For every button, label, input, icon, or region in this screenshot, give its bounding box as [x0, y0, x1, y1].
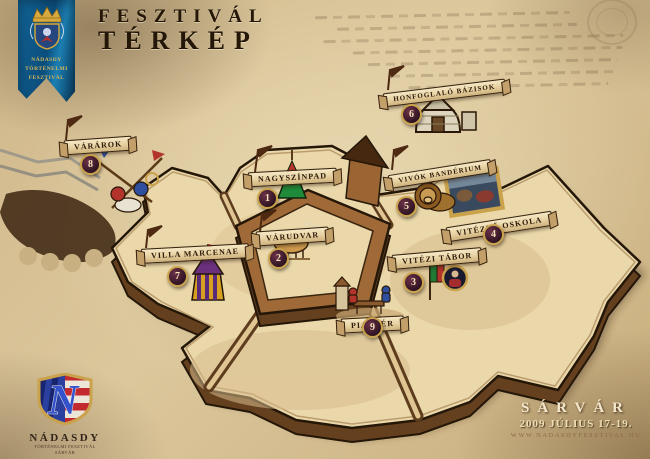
- title-line-1: FESZTIVÁL: [98, 7, 269, 27]
- nadasdy-monogram: N: [47, 378, 80, 424]
- location-badge-4: 4: [483, 224, 504, 245]
- location-badge-8: 8: [80, 154, 101, 175]
- nadasdy-logo: N NÁDASDY TÖRTÉNELMI FESZTIVÁL SÁRVÁR: [22, 373, 108, 457]
- event-info: SÁRVÁR 2009 JÚLIUS 17-19. WWW.NADASDYFES…: [507, 400, 645, 439]
- nadasdy-shield: N: [37, 373, 93, 425]
- location-badge-1: 1: [257, 188, 278, 209]
- nadasdy-logo-sub2: SÁRVÁR: [22, 450, 108, 456]
- location-badge-2: 2: [268, 248, 289, 269]
- festival-map-poster: FESZTIVÁL TÉRKÉP NÁDASDY TÖRTÉNELMI FESZ…: [0, 0, 650, 459]
- event-date: 2009 JÚLIUS 17-19.: [507, 418, 645, 430]
- event-city: SÁRVÁR: [507, 400, 645, 417]
- nadasdy-logo-name: NÁDASDY: [22, 432, 108, 444]
- flag-line-2: TÖRTÉNELMI: [18, 65, 75, 74]
- moat: [0, 190, 116, 272]
- location-badge-6: 6: [401, 104, 422, 125]
- event-url: WWW.NADASDYFESZTIVAL.HU: [507, 432, 645, 439]
- location-badge-3: 3: [403, 272, 424, 293]
- flag-line-1: NÁDASDY: [18, 56, 75, 65]
- title-line-2: TÉRKÉP: [98, 27, 269, 54]
- location-badge-9: 9: [362, 317, 383, 338]
- festival-crest: [27, 5, 67, 55]
- location-badge-5: 5: [396, 196, 417, 217]
- location-badge-7: 7: [167, 266, 188, 287]
- page-title: FESZTIVÁL TÉRKÉP: [98, 7, 269, 54]
